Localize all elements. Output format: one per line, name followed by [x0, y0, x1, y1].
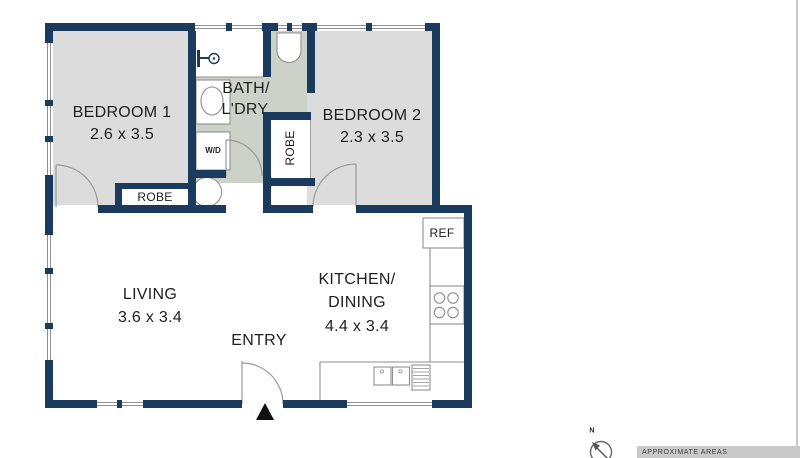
- compass-icon: [591, 442, 612, 458]
- bath-laundry-label-line1: BATH/: [222, 81, 269, 97]
- entry-arrow-icon: [256, 403, 274, 420]
- compass-north-label: N: [589, 428, 594, 435]
- shower-icon: [197, 50, 219, 67]
- bedroom1-dimensions: 2.6 x 3.5: [90, 127, 154, 143]
- areas-note-banner: APPROXIMATE AREAS: [637, 446, 800, 458]
- fridge-label: REF: [430, 227, 455, 239]
- bath-laundry-label-line2: L'DRY: [222, 102, 269, 118]
- bedroom2-robe-label: ROBE: [284, 130, 296, 165]
- washer-dryer-label: W/D: [205, 147, 221, 155]
- laundry-tub-icon: [193, 178, 222, 207]
- bedroom2-dimensions: 2.3 x 3.5: [340, 130, 404, 146]
- entry-label: ENTRY: [231, 333, 286, 349]
- kitchen-dining-label-line1: KITCHEN/: [318, 272, 395, 288]
- kitchen-sink-icon: [374, 367, 410, 385]
- floorplan-drawing: [0, 0, 800, 458]
- cooktop-icon: [430, 286, 464, 324]
- toilet-icon: [277, 33, 301, 63]
- bedroom1-robe-label: ROBE: [137, 191, 172, 203]
- floorplan-page: BEDROOM 1 2.6 x 3.5 BATH/ L'DRY BEDROOM …: [0, 0, 800, 458]
- kitchen-dining-dimensions: 4.4 x 3.4: [325, 319, 389, 335]
- bedroom1-label: BEDROOM 1: [73, 105, 172, 121]
- dishwasher-icon: [412, 365, 430, 390]
- living-dimensions: 3.6 x 3.4: [118, 310, 182, 326]
- kitchen-dining-label-line2: DINING: [328, 295, 386, 311]
- living-label: LIVING: [123, 287, 177, 303]
- bedroom2-label: BEDROOM 2: [323, 108, 422, 124]
